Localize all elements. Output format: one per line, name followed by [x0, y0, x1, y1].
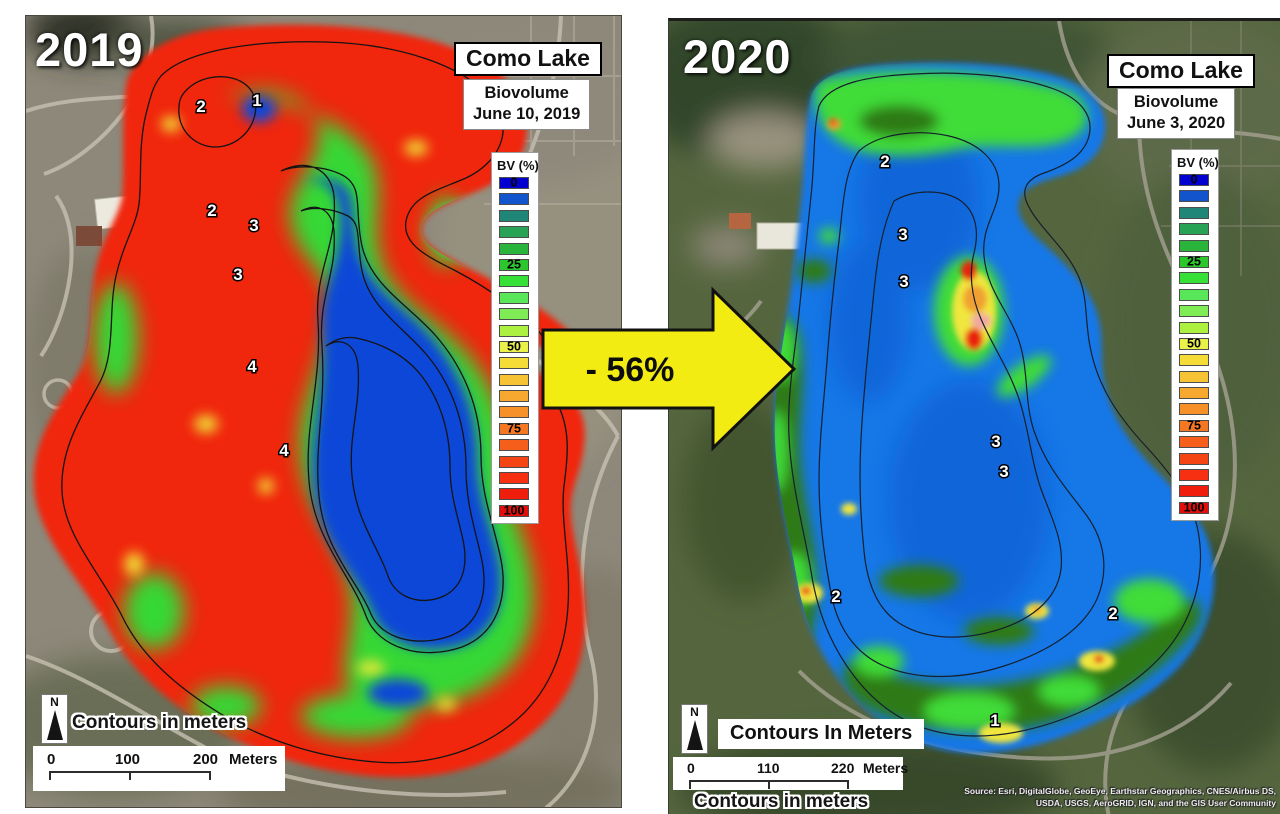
subtitle-date: June 10, 2019 [473, 104, 580, 125]
contour-depth-label: 1 [990, 711, 999, 730]
figure-como-lake-biovolume-comparison: 2123344 2019 Como Lake Biovolume June 10… [0, 0, 1280, 814]
legend-swatch: 0 [499, 177, 529, 189]
north-label: N [690, 706, 699, 718]
legend-swatch [1179, 453, 1209, 465]
map-title-2019: Como Lake [454, 42, 602, 76]
scale-bar-2019: 0 100 200 Meters [33, 746, 285, 791]
north-arrow-icon [687, 720, 703, 750]
legend-swatch: 25 [1179, 256, 1209, 268]
map-title-2020: Como Lake [1107, 54, 1255, 88]
legend-title: BV (%) [497, 158, 531, 173]
north-label: N [50, 696, 59, 708]
legend-swatch: 25 [499, 259, 529, 271]
legend-swatch [1179, 305, 1209, 317]
legend-swatch [1179, 223, 1209, 235]
legend-swatch: 75 [1179, 420, 1209, 432]
contour-depth-label: 3 [898, 225, 907, 244]
legend-title: BV (%) [1177, 155, 1211, 170]
legend-swatch [1179, 354, 1209, 366]
legend-swatch [1179, 403, 1209, 415]
legend-swatch [499, 325, 529, 337]
scale-bar-line [681, 780, 895, 789]
legend-swatch [1179, 485, 1209, 497]
contour-depth-label: 2 [831, 587, 840, 606]
legend-swatch [1179, 436, 1209, 448]
scale-unit: Meters [863, 760, 908, 776]
year-label-2019: 2019 [35, 22, 144, 77]
legend-swatch [499, 308, 529, 320]
subtitle-date: June 3, 2020 [1127, 113, 1225, 134]
contour-depth-label: 3 [233, 265, 242, 284]
legend-swatch [1179, 322, 1209, 334]
legend-swatch [499, 488, 529, 500]
year-label-2020: 2020 [683, 29, 792, 84]
legend-swatch [499, 439, 529, 451]
contours-note-2020: Contours in meters [694, 791, 868, 813]
legend-swatch [1179, 190, 1209, 202]
scale-mid: 110 [757, 760, 780, 776]
north-arrow-icon [47, 710, 63, 740]
legend-swatch [499, 292, 529, 304]
legend-swatch [499, 275, 529, 287]
legend-color-ramp: 0255075100 [499, 177, 531, 517]
contour-depth-label: 4 [247, 357, 257, 376]
legend-swatch: 100 [499, 505, 529, 517]
legend-swatch [499, 406, 529, 418]
scale-0: 0 [47, 751, 55, 768]
legend-swatch [1179, 469, 1209, 481]
north-arrow-2019: N [41, 694, 68, 744]
legend-swatch [499, 390, 529, 402]
subtitle-biovolume: Biovolume [1127, 92, 1225, 113]
legend-tick-label: 75 [1187, 419, 1201, 432]
contour-depth-label: 3 [899, 272, 908, 291]
contour-depth-label: 1 [252, 91, 261, 110]
legend-swatch: 75 [499, 423, 529, 435]
legend-swatch [499, 456, 529, 468]
contour-depth-label: 3 [999, 462, 1008, 481]
subtitle-biovolume: Biovolume [473, 83, 580, 104]
legend-swatch [499, 243, 529, 255]
legend-swatch [499, 374, 529, 386]
scale-end: 220 [831, 760, 854, 776]
legend-swatch [1179, 289, 1209, 301]
scale-mid: 100 [115, 751, 140, 768]
north-arrow-2020: N [681, 704, 708, 754]
legend-tick-label: 25 [1187, 255, 1201, 268]
legend-tick-label: 0 [511, 176, 518, 189]
contour-depth-label: 2 [880, 152, 889, 171]
contour-depth-label: 2 [196, 97, 205, 116]
legend-swatch: 50 [1179, 338, 1209, 350]
source-line-1: Source: Esri, DigitalGlobe, GeoEye, Eart… [946, 786, 1276, 797]
scale-bar-2020: 0 110 220 Meters [673, 757, 903, 790]
imagery-source-attribution: Source: Esri, DigitalGlobe, GeoEye, Eart… [946, 786, 1276, 809]
legend-swatch [1179, 207, 1209, 219]
bv-legend-2020: BV (%) 0255075100 [1171, 149, 1219, 521]
legend-swatch [1179, 387, 1209, 399]
scale-end: 200 [193, 751, 218, 768]
legend-tick-label: 100 [504, 504, 525, 517]
legend-swatch [1179, 272, 1209, 284]
contours-note-2019: Contours in meters [72, 712, 246, 734]
map-panel-2019: 2123344 2019 Como Lake Biovolume June 10… [25, 15, 622, 808]
legend-swatch [499, 193, 529, 205]
legend-swatch: 100 [1179, 502, 1209, 514]
legend-tick-label: 50 [1187, 337, 1201, 350]
percent-change-label: - 56% [586, 351, 675, 389]
right-arrow-icon: - 56% [538, 283, 800, 455]
legend-swatch: 0 [1179, 174, 1209, 186]
contours-box-2020: Contours In Meters [718, 719, 924, 749]
source-line-2: USDA, USGS, AeroGRID, IGN, and the GIS U… [946, 798, 1276, 809]
legend-tick-label: 50 [507, 340, 521, 353]
change-arrow: - 56% [538, 283, 800, 455]
legend-swatch [499, 357, 529, 369]
legend-swatch [499, 210, 529, 222]
legend-swatch: 50 [499, 341, 529, 353]
scale-unit: Meters [229, 751, 277, 768]
legend-tick-label: 25 [507, 258, 521, 271]
legend-color-ramp: 0255075100 [1179, 174, 1211, 514]
legend-tick-label: 100 [1184, 501, 1205, 514]
scale-bar-line [41, 771, 277, 780]
contour-depth-label: 3 [991, 432, 1000, 451]
legend-tick-label: 75 [507, 422, 521, 435]
contour-depth-label: 2 [1108, 604, 1117, 623]
contour-depth-label: 2 [207, 201, 216, 220]
contour-depth-label: 3 [249, 216, 258, 235]
legend-swatch [499, 226, 529, 238]
legend-swatch [1179, 371, 1209, 383]
legend-swatch [1179, 240, 1209, 252]
legend-tick-label: 0 [1191, 173, 1198, 186]
bv-legend-2019: BV (%) 0255075100 [491, 152, 539, 524]
map-subtitle-2019: Biovolume June 10, 2019 [463, 79, 590, 130]
map-subtitle-2020: Biovolume June 3, 2020 [1117, 88, 1235, 139]
contour-depth-label: 4 [279, 441, 289, 460]
scale-0: 0 [687, 760, 695, 776]
legend-swatch [499, 472, 529, 484]
